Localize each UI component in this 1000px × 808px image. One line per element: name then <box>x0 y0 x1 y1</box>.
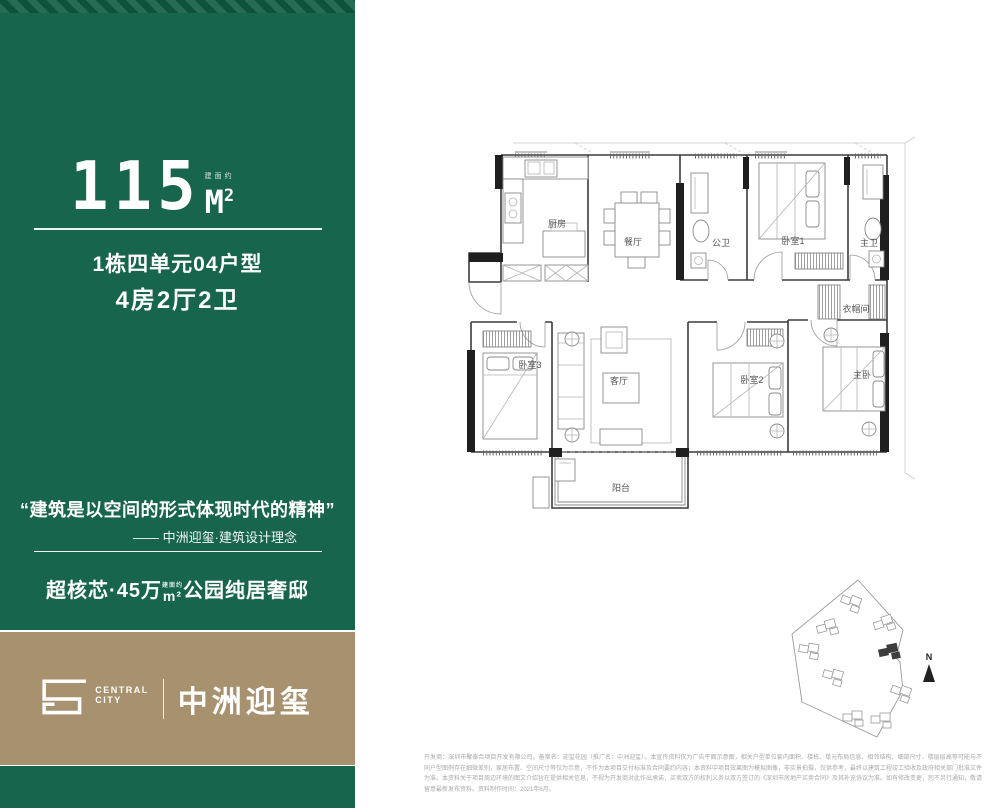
kitchen-fixtures <box>503 157 588 281</box>
divider-rule-bottom <box>34 551 322 552</box>
north-compass: N <box>923 652 935 682</box>
central-city-logo-icon <box>41 678 89 720</box>
site-map: N <box>788 572 948 750</box>
area-title: 115 建面约 M2 <box>70 158 235 216</box>
label-master-bed: 主卧 <box>853 369 871 380</box>
label-master-bath: 主卫 <box>860 237 878 248</box>
logo-divider <box>163 679 164 719</box>
brand-name: 中洲迎玺 <box>178 677 314 721</box>
label-bedroom1: 卧室1 <box>781 235 804 246</box>
label-living: 客厅 <box>610 375 628 386</box>
unit-number-line: 1栋四单元04户型 <box>0 248 355 278</box>
balcony-outline <box>533 457 688 508</box>
tagline-unit-group: 建面约m² <box>162 583 183 603</box>
bedroom3-furniture <box>483 331 537 439</box>
tagline-suffix: 公园纯居奢邸 <box>183 580 309 602</box>
brand-logo-row: CENTRAL CITY 中洲迎玺 <box>41 677 314 721</box>
north-label: N <box>926 652 933 662</box>
master-bedroom-furniture <box>823 328 885 436</box>
legal-disclaimer: 开发商：深圳市聚泰合项目开发有限公司。备案名：迎玺花园（推广名：中洲迎玺）。本宣… <box>424 753 982 795</box>
area-note: 建面约 <box>205 171 235 181</box>
compass-arrow-icon <box>923 664 935 682</box>
floorplan: 厨房 餐厅 公卫 卧室1 主卫 衣帽间 卧室3 客厅 卧室2 主卧 阳台 <box>425 135 945 555</box>
project-tagline: 超核芯·45万建面约m²公园纯居奢邸 <box>0 574 355 603</box>
tagline-unit-note: 建面约 <box>162 583 183 589</box>
site-map-svg: N <box>788 572 948 750</box>
chevron-pattern-strip <box>0 0 355 13</box>
label-balcony: 阳台 <box>612 482 630 493</box>
label-guest-bath: 公卫 <box>712 238 730 248</box>
tagline-prefix: 超核芯·45万 <box>46 580 162 602</box>
city-text: CITY <box>95 695 149 705</box>
dining-furniture <box>604 192 670 268</box>
bottom-green-strip <box>0 766 355 808</box>
room-layout-line: 4房2厅2卫 <box>0 280 355 315</box>
label-dining: 餐厅 <box>624 236 642 247</box>
central-city-wordmark: CENTRAL CITY <box>95 685 149 705</box>
central-text: CENTRAL <box>95 685 149 695</box>
tagline-unit: m² <box>163 589 182 603</box>
guest-bathroom-fixtures <box>691 173 709 268</box>
living-room-furniture <box>558 327 671 445</box>
brand-band: CENTRAL CITY 中洲迎玺 <box>0 632 355 765</box>
area-unit-letter: M <box>205 183 224 221</box>
area-value: 115 <box>70 157 201 217</box>
left-info-panel: 115 建面约 M2 1栋四单元04户型 4房2厅2卫 “建筑是以空间的形式体现… <box>0 0 355 630</box>
label-closet: 衣帽间 <box>842 303 869 314</box>
label-bedroom3: 卧室3 <box>518 359 541 370</box>
area-unit-group: 建面约 M2 <box>205 171 235 216</box>
label-kitchen: 厨房 <box>548 218 566 229</box>
quote-attribution: —— 中洲迎玺·建筑设计理念 <box>75 527 355 546</box>
area-unit-sup: 2 <box>224 186 234 206</box>
entrance-door <box>469 282 501 314</box>
floorplan-svg: 厨房 餐厅 公卫 卧室1 主卫 衣帽间 卧室3 客厅 卧室2 主卧 阳台 <box>425 135 945 555</box>
label-bedroom2: 卧室2 <box>740 374 763 385</box>
design-quote: “建筑是以空间的形式体现时代的精神” <box>0 496 355 522</box>
area-unit: M2 <box>205 182 235 216</box>
divider-rule-top <box>34 228 322 230</box>
bedroom1-furniture <box>759 163 843 269</box>
